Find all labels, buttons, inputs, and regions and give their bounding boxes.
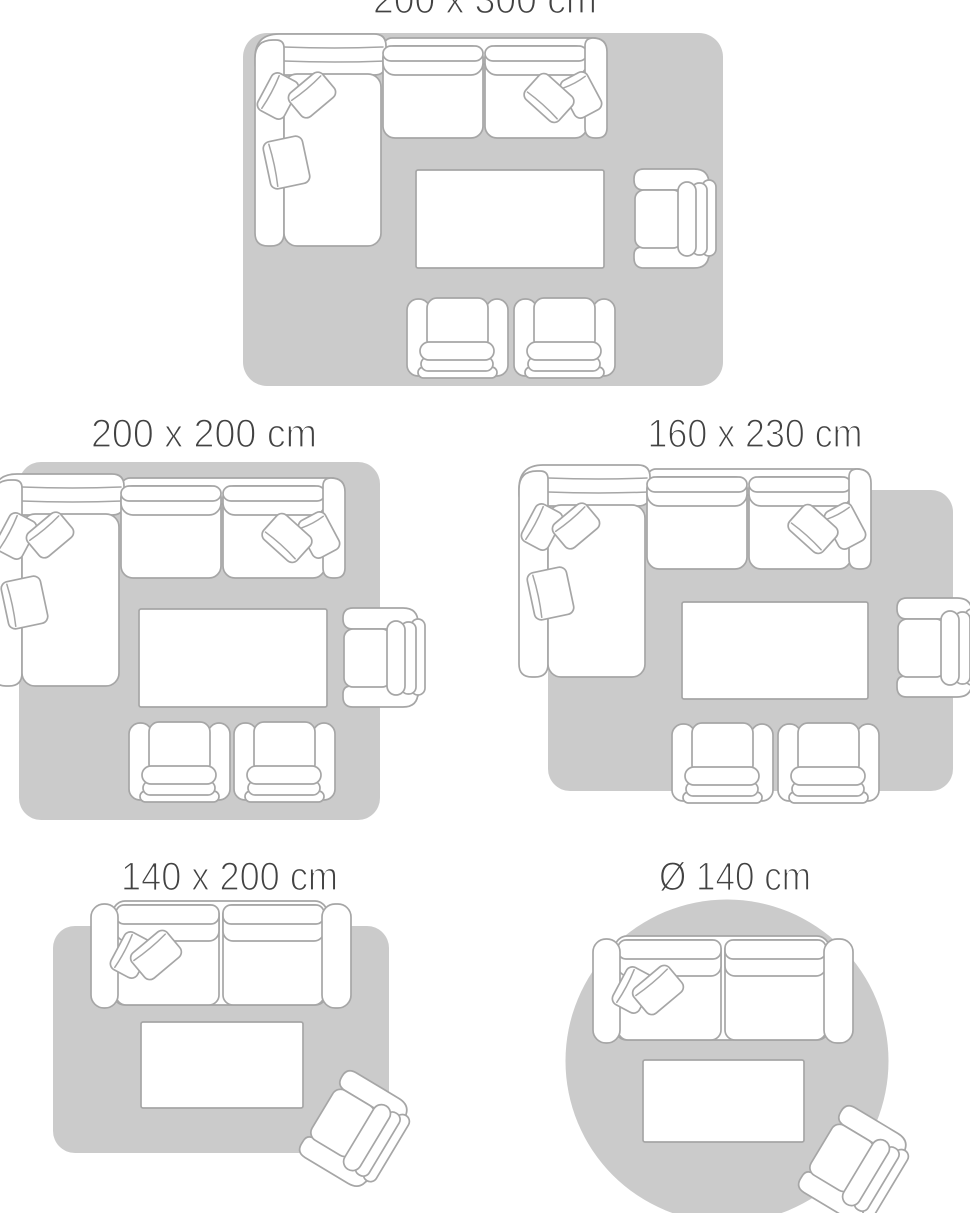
svg-text:160 x 230 cm: 160 x 230 cm xyxy=(648,412,863,456)
svg-text:200 x 200 cm: 200 x 200 cm xyxy=(91,412,317,456)
svg-text:140 x 200 cm: 140 x 200 cm xyxy=(121,855,338,899)
svg-text:Ø 140 cm: Ø 140 cm xyxy=(659,855,811,899)
svg-text:200 x 300 cm: 200 x 300 cm xyxy=(373,0,597,22)
